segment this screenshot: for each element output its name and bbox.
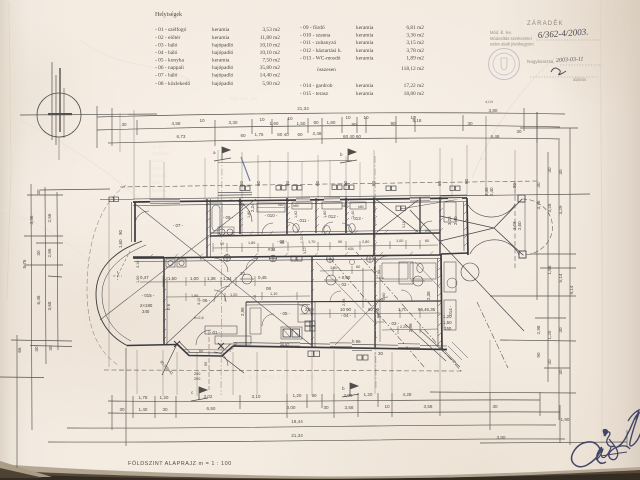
- svg-text:2,40: 2,40: [489, 187, 494, 196]
- svg-text:10,10 m2: 10,10 m2: [260, 50, 281, 56]
- svg-text:0,45: 0,45: [258, 275, 267, 280]
- svg-text:10: 10: [253, 295, 257, 299]
- svg-text:keramia: keramia: [356, 40, 374, 46]
- svg-text:2,66: 2,66: [47, 248, 52, 257]
- svg-text:118,12 m2: 118,12 m2: [401, 66, 424, 72]
- svg-text:keramia: keramia: [212, 35, 230, 41]
- svg-text:10: 10: [240, 271, 245, 276]
- svg-text:odstham: odstham: [152, 151, 170, 156]
- svg-text:obsAsbcl: obsAsbcl: [152, 195, 171, 200]
- svg-text:hajópadló: hajópadló: [212, 43, 234, 49]
- svg-text:- 014 - gardrob: - 014 - gardrob: [300, 83, 333, 89]
- svg-text:1,34: 1,34: [223, 276, 232, 281]
- svg-text:6,48: 6,48: [36, 295, 41, 304]
- svg-text:keramia: keramia: [356, 83, 374, 89]
- svg-text:keramia: keramia: [356, 25, 374, 31]
- svg-text:- 015 - terasz: - 015 - terasz: [300, 91, 329, 97]
- svg-text:30: 30: [162, 407, 168, 412]
- svg-text:2,50: 2,50: [305, 307, 314, 312]
- svg-text:60: 60: [425, 239, 429, 243]
- svg-text:08: 08: [266, 286, 271, 291]
- svg-text:c: c: [191, 390, 194, 395]
- svg-text:2,80: 2,80: [362, 240, 369, 244]
- svg-text:60: 60: [297, 132, 303, 137]
- svg-text:90: 90: [536, 352, 541, 358]
- svg-text:30: 30: [547, 359, 552, 365]
- svg-text:3,36 m2: 3,36 m2: [406, 33, 424, 39]
- svg-text:1,38: 1,38: [207, 276, 216, 281]
- svg-text:10: 10: [363, 115, 369, 120]
- svg-text:3,58: 3,58: [345, 405, 354, 410]
- svg-text:14,40 m2: 14,40 m2: [260, 73, 281, 79]
- svg-text:3,28: 3,28: [547, 203, 552, 212]
- svg-text:30: 30: [48, 345, 53, 351]
- svg-text:1,20: 1,20: [160, 395, 169, 400]
- svg-text:3,15 m2: 3,15 m2: [406, 40, 424, 46]
- svg-text:200: 200: [194, 377, 200, 381]
- svg-text:1,40: 1,40: [139, 407, 148, 412]
- svg-text:bogliss: bogliss: [152, 188, 167, 193]
- svg-text:90: 90: [311, 393, 317, 398]
- svg-text:6,73: 6,73: [177, 134, 186, 139]
- svg-text:3,78 m2: 3,78 m2: [406, 48, 424, 54]
- svg-text:90: 90: [118, 230, 123, 235]
- svg-text:- 04 - háló: - 04 - háló: [155, 50, 178, 56]
- svg-text:6/362-4/2003.: 6/362-4/2003.: [537, 26, 588, 40]
- svg-text:- 05 -: - 05 -: [280, 311, 291, 316]
- svg-text:2,48: 2,48: [313, 131, 322, 136]
- svg-text:1,86: 1,86: [191, 294, 198, 298]
- svg-text:2×180: 2×180: [140, 303, 153, 308]
- svg-text:3,53 m2: 3,53 m2: [262, 27, 280, 33]
- svg-text:30: 30: [36, 189, 41, 195]
- svg-text:Nagykanizsa,: Nagykanizsa,: [527, 59, 555, 64]
- svg-text:6,48: 6,48: [491, 134, 500, 139]
- svg-text:- 010 - szauna: - 010 - szauna: [300, 33, 331, 39]
- svg-text:10: 10: [199, 118, 205, 123]
- svg-text:80: 80: [512, 183, 517, 188]
- svg-text:17,22 m2: 17,22 m2: [404, 83, 425, 89]
- svg-text:1,20: 1,20: [443, 314, 452, 319]
- svg-text:7,50 m2: 7,50 m2: [262, 58, 280, 64]
- svg-text:3,10: 3,10: [252, 394, 261, 399]
- svg-text:1,78: 1,78: [139, 395, 148, 400]
- svg-text:Helyiségek: Helyiségek: [155, 12, 182, 18]
- svg-text:9,14: 9,14: [569, 285, 574, 294]
- svg-text:5,18: 5,18: [413, 118, 422, 123]
- svg-text:90: 90: [338, 240, 342, 244]
- svg-text:keramia: keramia: [356, 33, 374, 39]
- svg-text:30: 30: [121, 122, 127, 127]
- svg-text:- 07 - háló: - 07 - háló: [155, 73, 178, 79]
- svg-text:2,20: 2,20: [400, 325, 407, 329]
- svg-text:1,62: 1,62: [294, 211, 298, 218]
- svg-text:240: 240: [142, 309, 150, 314]
- svg-text:- 011 -: - 011 -: [297, 218, 310, 223]
- svg-text:1,50: 1,50: [297, 121, 306, 126]
- svg-text:30: 30: [558, 169, 563, 175]
- svg-text:1,70: 1,70: [308, 240, 315, 244]
- svg-text:- 07 -: - 07 -: [173, 223, 184, 228]
- svg-text:30: 30: [558, 369, 563, 375]
- svg-text:- 09 - fürdő: - 09 - fürdő: [300, 24, 325, 31]
- svg-text:srat -210- am: srat -210- am: [230, 96, 257, 101]
- svg-text:- 013 - WC-mosdó: - 013 - WC-mosdó: [300, 56, 341, 62]
- svg-text:11,80 m2: 11,80 m2: [260, 35, 280, 41]
- svg-text:1,20: 1,20: [230, 293, 237, 297]
- svg-text:1,50: 1,50: [168, 276, 177, 281]
- svg-text:2,98: 2,98: [408, 323, 413, 332]
- svg-text:21,34: 21,34: [291, 433, 303, 438]
- svg-text:1,90: 1,90: [561, 417, 570, 422]
- svg-text:sdosml: sdosml: [152, 173, 167, 178]
- svg-text:h=2,6: h=2,6: [194, 316, 204, 320]
- svg-text:FÖLDSZINT ALAPRAJZ m = 1 :: FÖLDSZINT ALAPRAJZ m = 1 : 100: [128, 460, 232, 467]
- svg-text:h80: h80: [278, 203, 284, 207]
- svg-text:2,40: 2,40: [453, 216, 458, 225]
- svg-text:- 02 - előtér: - 02 - előtér: [155, 35, 180, 41]
- svg-text:Mód. ill. lev.: Mód. ill. lev.: [490, 30, 512, 35]
- svg-text:hajópadló: hajópadló: [212, 50, 234, 56]
- svg-text:- 01 - szélfogó: - 01 - szélfogó: [155, 26, 187, 33]
- svg-text:1,20: 1,20: [364, 392, 373, 397]
- svg-text:h 96: h 96: [352, 339, 361, 344]
- svg-text:96,46,36: 96,46,36: [418, 307, 436, 312]
- svg-text:1,50: 1,50: [330, 266, 337, 270]
- svg-text:3,68: 3,68: [47, 301, 52, 310]
- svg-text:3,10: 3,10: [303, 247, 307, 254]
- svg-text:+ 0,00: + 0,00: [338, 275, 351, 280]
- svg-text:30: 30: [547, 167, 552, 173]
- svg-text:- 09 -: - 09 -: [223, 215, 234, 220]
- svg-text:200: 200: [194, 372, 200, 376]
- svg-text:- 06 -: - 06 -: [200, 298, 211, 303]
- svg-text:a: a: [213, 150, 216, 155]
- svg-text:5,90 m2: 5,90 m2: [262, 81, 280, 87]
- svg-text:3,00: 3,00: [287, 405, 296, 410]
- svg-text:3,10: 3,10: [197, 298, 201, 305]
- svg-text:1,20: 1,20: [547, 330, 552, 339]
- svg-text:h80: h80: [239, 203, 245, 207]
- svg-text:10: 10: [345, 115, 351, 120]
- svg-text:1,80: 1,80: [323, 211, 327, 218]
- svg-text:szám alatti jóváhagyom: szám alatti jóváhagyom: [490, 42, 534, 47]
- svg-text:30: 30: [536, 182, 541, 188]
- svg-text:19,44: 19,44: [291, 419, 303, 424]
- svg-text:2,98: 2,98: [342, 299, 346, 306]
- svg-text:keramia: keramia: [212, 58, 230, 64]
- svg-text:h 6: h 6: [166, 303, 171, 310]
- svg-text:59: 59: [204, 362, 208, 366]
- svg-text:keramia: keramia: [356, 91, 374, 97]
- svg-text:90: 90: [220, 242, 224, 246]
- svg-text:30: 30: [516, 129, 522, 134]
- svg-text:hajópadló: hajópadló: [212, 73, 234, 79]
- svg-text:1,70: 1,70: [398, 307, 407, 312]
- svg-text:1,80: 1,80: [327, 120, 336, 125]
- svg-text:2,38: 2,38: [426, 291, 431, 300]
- svg-text:21,34: 21,34: [297, 106, 309, 111]
- svg-text:1,80: 1,80: [247, 211, 251, 218]
- svg-text:1,00: 1,00: [300, 236, 304, 243]
- svg-text:2,98: 2,98: [240, 307, 245, 316]
- svg-text:1,20: 1,20: [293, 393, 302, 398]
- svg-text:3,30: 3,30: [229, 120, 238, 125]
- svg-text:3,80: 3,80: [497, 435, 506, 440]
- svg-text:h0: h0: [199, 349, 203, 353]
- svg-text:- 08 - közlekedő: - 08 - közlekedő: [155, 81, 190, 87]
- svg-text:hajópadló: hajópadló: [212, 65, 234, 71]
- svg-text:1,60: 1,60: [270, 121, 279, 126]
- svg-text:60: 60: [356, 265, 360, 269]
- svg-text:#34: #34: [348, 247, 354, 251]
- svg-text:5,14: 5,14: [558, 273, 563, 282]
- svg-text:30: 30: [378, 351, 383, 356]
- svg-text:1,68: 1,68: [547, 265, 552, 274]
- svg-text:- 012 -: - 012 -: [326, 214, 339, 219]
- svg-text:85·200×41: 85·200×41: [159, 360, 174, 376]
- svg-text:- 010 -: - 010 -: [265, 213, 278, 218]
- svg-text:60: 60: [437, 181, 442, 186]
- svg-text:1,00: 1,00: [190, 276, 199, 281]
- svg-text:- 015 -: - 015 -: [142, 293, 155, 298]
- svg-text:sm: sm: [480, 156, 486, 161]
- svg-text:10: 10: [259, 117, 265, 122]
- svg-text:1,50: 1,50: [443, 320, 452, 325]
- svg-text:1,00: 1,00: [396, 239, 403, 243]
- svg-text:aláírás: aláírás: [573, 77, 587, 82]
- svg-text:4,28: 4,28: [403, 392, 412, 397]
- svg-text:h80: h80: [342, 204, 348, 208]
- svg-text:90: 90: [313, 120, 319, 125]
- svg-text:30: 30: [558, 327, 563, 333]
- svg-text:- 03 - háló: - 03 - háló: [155, 43, 178, 49]
- svg-text:4,58: 4,58: [172, 121, 181, 126]
- svg-text:60 40 60: 60 40 60: [343, 134, 361, 139]
- svg-text:2003-03-11: 2003-03-11: [556, 57, 584, 64]
- svg-text:1,89 m2: 1,89 m2: [406, 56, 424, 62]
- svg-text:h80: h80: [358, 205, 364, 209]
- svg-text:#34: #34: [268, 247, 276, 252]
- svg-text:3,29: 3,29: [558, 205, 563, 214]
- svg-text:90: 90: [377, 314, 381, 318]
- svg-text:1,10: 1,10: [270, 292, 277, 296]
- svg-text:Módosítás szerkezetei: Módosítás szerkezetei: [490, 36, 532, 41]
- svg-text:30: 30: [36, 250, 41, 256]
- svg-text:- 01 -: - 01 -: [210, 330, 221, 335]
- svg-text:6,81 m2: 6,81 m2: [406, 25, 424, 31]
- svg-text:keramia: keramia: [356, 48, 374, 54]
- svg-text:30: 30: [119, 407, 125, 412]
- svg-text:8,76: 8,76: [22, 259, 27, 268]
- svg-text:b: b: [342, 386, 345, 391]
- svg-text:60: 60: [240, 133, 246, 138]
- svg-text:10 90: 10 90: [340, 307, 352, 312]
- svg-text:30: 30: [323, 405, 329, 410]
- svg-text:2,56: 2,56: [47, 213, 52, 222]
- svg-text:30: 30: [34, 346, 39, 352]
- svg-text:olsd: olsd: [152, 180, 161, 185]
- svg-text:1,80: 1,80: [248, 241, 255, 245]
- svg-text:- 012 - háztartási h.: - 012 - háztartási h.: [300, 48, 342, 54]
- svg-text:keramia: keramia: [212, 27, 230, 33]
- svg-text:2,60: 2,60: [517, 221, 522, 230]
- svg-text:2,60: 2,60: [382, 293, 386, 300]
- svg-text:90: 90: [351, 122, 357, 127]
- svg-text:30 97: 30 97: [280, 343, 289, 347]
- svg-text:3,58: 3,58: [424, 404, 433, 409]
- svg-text:18,80 m2: 18,80 m2: [404, 91, 425, 97]
- svg-text:1,60: 1,60: [118, 239, 123, 248]
- svg-text:3,10: 3,10: [136, 261, 140, 268]
- svg-text:0,47: 0,47: [140, 275, 149, 280]
- svg-text:- 011 - zuhanyzó: - 011 - zuhanyzó: [300, 40, 336, 46]
- svg-text:keramia: keramia: [356, 56, 374, 62]
- svg-text:80: 80: [464, 179, 469, 184]
- svg-text:hajópadló: hajópadló: [212, 81, 234, 87]
- svg-text:30: 30: [467, 121, 473, 126]
- svg-text:összesen: összesen: [317, 67, 336, 73]
- svg-text:150: 150: [444, 326, 452, 331]
- svg-text:h80: h80: [293, 204, 299, 208]
- svg-text:1,00: 1,00: [136, 276, 140, 283]
- svg-text:10: 10: [287, 116, 293, 121]
- svg-text:35,80 m2: 35,80 m2: [260, 65, 281, 71]
- svg-text:- 06 - nappali: - 06 - nappali: [155, 65, 184, 71]
- svg-text:- 05 - konyha: - 05 - konyha: [155, 58, 185, 64]
- svg-text:ol6rl: ol6rl: [152, 166, 161, 171]
- svg-text:ZÁRADÉK: ZÁRADÉK: [527, 20, 564, 27]
- svg-text:10: 10: [384, 404, 390, 409]
- svg-text:b: b: [340, 152, 343, 157]
- svg-text:3,80: 3,80: [489, 108, 498, 113]
- svg-text:30: 30: [492, 404, 498, 409]
- svg-text:3,36: 3,36: [29, 215, 34, 224]
- svg-text:66: 66: [17, 347, 22, 353]
- svg-text:60: 60: [315, 181, 320, 186]
- svg-text:3,28: 3,28: [447, 216, 452, 225]
- svg-text:90: 90: [377, 270, 381, 274]
- svg-text:nsaszzd: nsaszzd: [152, 203, 169, 208]
- svg-text:3,18: 3,18: [402, 221, 406, 228]
- svg-text:- 04 -: - 04 -: [341, 313, 352, 318]
- svg-text:3,78: 3,78: [536, 200, 541, 209]
- svg-text:260·40: 260·40: [228, 342, 238, 353]
- svg-text:1,75: 1,75: [255, 132, 264, 137]
- svg-text:s A 4 HELYET 37 7M: s A 4 HELYET 37 7M: [242, 375, 316, 381]
- svg-text:6,50: 6,50: [207, 406, 216, 411]
- svg-text:- 03 -: - 03 -: [389, 321, 400, 326]
- svg-text:0%: 0%: [425, 229, 430, 233]
- svg-text:ol -10 -: ol -10 -: [152, 144, 167, 149]
- svg-text:2,98: 2,98: [536, 325, 541, 334]
- svg-text:4,04: 4,04: [485, 99, 494, 104]
- svg-text:olsdd: olsdd: [152, 158, 163, 163]
- svg-text:60 40: 60 40: [277, 132, 289, 137]
- svg-text:90: 90: [280, 241, 284, 245]
- svg-text:- 02 -: - 02 -: [339, 282, 350, 287]
- svg-text:90: 90: [390, 121, 396, 126]
- svg-text:10,10 m2: 10,10 m2: [260, 43, 281, 49]
- svg-text:1,40: 1,40: [351, 211, 355, 218]
